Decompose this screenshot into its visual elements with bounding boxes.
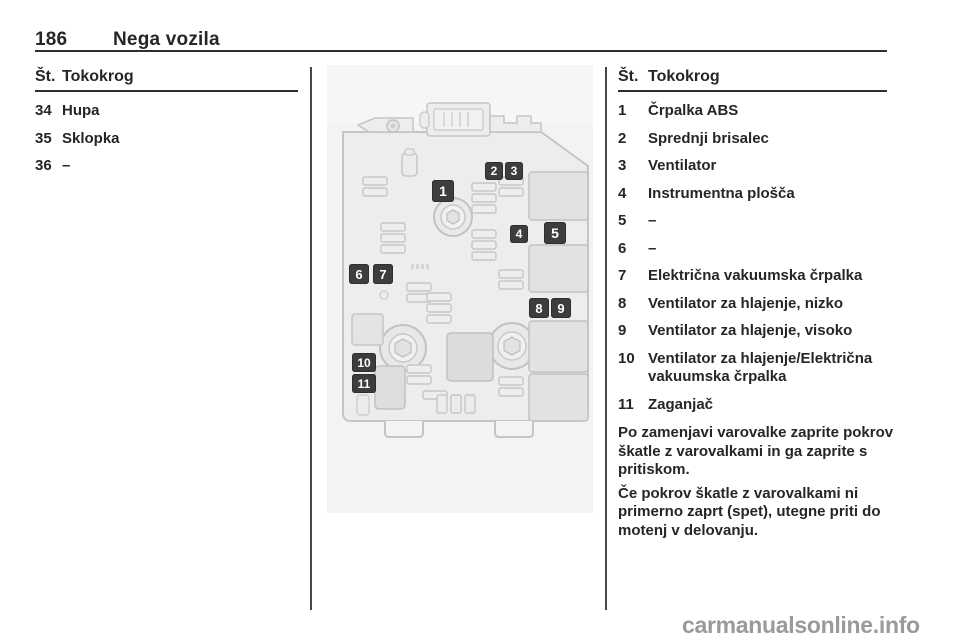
circuit-name: Sprednji brisalec <box>648 130 908 149</box>
note-close-cover: Po zamenjavi varovalke zaprite pokrov šk… <box>618 424 896 480</box>
table-row: 35 Sklopka <box>35 130 303 149</box>
circuit-name: Instrumentna plošča <box>648 185 908 204</box>
table-row: 1 Črpalka ABS <box>618 102 908 121</box>
fuse-label-9: 9 <box>551 298 571 318</box>
circuit-name: – <box>648 240 908 259</box>
circuit-number: 4 <box>618 185 648 204</box>
left-table-header-rule <box>35 90 298 92</box>
chapter-title: Nega vozila <box>113 29 220 50</box>
right-table-header-rule <box>618 90 887 92</box>
circuit-number: 6 <box>618 240 648 259</box>
circuit-name: – <box>62 157 303 176</box>
left-table-header: Št. Tokokrog <box>35 68 303 85</box>
circuit-number: 7 <box>618 267 648 286</box>
circuit-number: 5 <box>618 212 648 231</box>
column-header-circuit: Tokokrog <box>648 68 720 85</box>
page-number: 186 <box>35 29 113 51</box>
watermark-carmanualsonline: carmanualsonline.info <box>682 612 920 639</box>
right-circuit-table: Št. Tokokrog 1 Črpalka ABS 2 Sprednji br… <box>618 68 908 540</box>
circuit-name: – <box>648 212 908 231</box>
circuit-name: Ventilator za hlajenje, nizko <box>648 295 908 314</box>
fuse-box-illustration <box>327 65 593 513</box>
table-row: 7 Električna vakuumska črpalka <box>618 267 908 286</box>
circuit-number: 1 <box>618 102 648 121</box>
column-divider-left <box>310 67 312 610</box>
right-table-header: Št. Tokokrog <box>618 68 908 85</box>
circuit-number: 36 <box>35 157 62 176</box>
fuse-label-1: 1 <box>432 180 454 202</box>
fuse-label-6: 6 <box>349 264 369 284</box>
table-row: 3 Ventilator <box>618 157 908 176</box>
fuse-label-3: 3 <box>505 162 523 180</box>
circuit-name: Hupa <box>62 102 303 121</box>
fuse-label-4: 4 <box>510 225 528 243</box>
circuit-name: Ventilator za hlajenje/Električna vakuum… <box>648 350 908 387</box>
circuit-name: Črpalka ABS <box>648 102 908 121</box>
circuit-number: 3 <box>618 157 648 176</box>
table-row: 8 Ventilator za hlajenje, nizko <box>618 295 908 314</box>
table-row: 2 Sprednji brisalec <box>618 130 908 149</box>
manual-page: 186Nega vozila Št. Tokokrog 34 Hupa 35 S… <box>0 0 960 642</box>
circuit-name: Ventilator <box>648 157 908 176</box>
circuit-number: 34 <box>35 102 62 121</box>
circuit-number: 8 <box>618 295 648 314</box>
fuse-label-7: 7 <box>373 264 393 284</box>
table-row: 6 – <box>618 240 908 259</box>
column-header-circuit: Tokokrog <box>62 68 134 85</box>
column-header-number: Št. <box>35 68 62 85</box>
table-row: 5 – <box>618 212 908 231</box>
column-header-number: Št. <box>618 68 648 85</box>
table-row: 34 Hupa <box>35 102 303 121</box>
fuse-label-5: 5 <box>544 222 566 244</box>
fuse-label-11: 11 <box>352 374 376 393</box>
column-divider-right <box>605 67 607 610</box>
circuit-number: 11 <box>618 396 648 415</box>
header-rule <box>35 50 887 52</box>
page-header: 186Nega vozila <box>35 29 220 51</box>
table-row: 10 Ventilator za hlajenje/Električna vak… <box>618 350 908 387</box>
table-row: 36 – <box>35 157 303 176</box>
circuit-name: Zaganjač <box>648 396 908 415</box>
table-row: 9 Ventilator za hlajenje, visoko <box>618 322 908 341</box>
circuit-name: Ventilator za hlajenje, visoko <box>648 322 908 341</box>
circuit-number: 9 <box>618 322 648 341</box>
fuse-label-10: 10 <box>352 353 376 372</box>
left-circuit-table: Št. Tokokrog 34 Hupa 35 Sklopka 36 – <box>35 68 303 185</box>
circuit-name: Električna vakuumska črpalka <box>648 267 908 286</box>
table-row: 11 Zaganjač <box>618 396 908 415</box>
circuit-number: 10 <box>618 350 648 387</box>
table-row: 4 Instrumentna plošča <box>618 185 908 204</box>
fuse-label-8: 8 <box>529 298 549 318</box>
circuit-number: 35 <box>35 130 62 149</box>
fuse-box-figure: 1 2 3 4 5 6 7 8 9 10 11 <box>327 65 593 513</box>
circuit-number: 2 <box>618 130 648 149</box>
circuit-name: Sklopka <box>62 130 303 149</box>
fuse-label-2: 2 <box>485 162 503 180</box>
note-malfunction-warning: Če pokrov škatle z varovalkami ni primer… <box>618 485 896 541</box>
